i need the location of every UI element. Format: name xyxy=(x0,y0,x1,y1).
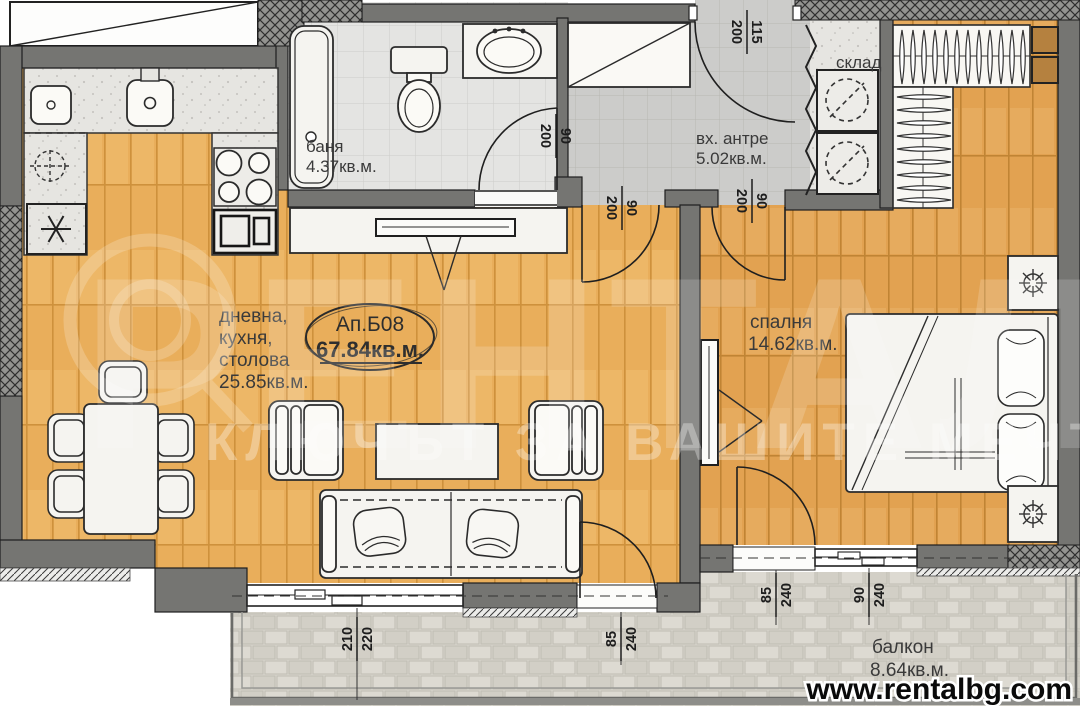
bathroom-area: 4.37кв.м. xyxy=(306,157,377,176)
floorplan-page: 115 200 90 200 90 200 90 200 210 220 85 … xyxy=(0,0,1080,713)
svg-text:210: 210 xyxy=(340,627,356,651)
sofa xyxy=(320,490,582,578)
svg-text:90: 90 xyxy=(852,587,868,603)
kitchen-side-sink xyxy=(31,86,71,124)
kitchen-top-window xyxy=(10,2,258,46)
washing-machine xyxy=(817,70,878,131)
bathroom-label: баня xyxy=(306,137,343,156)
washing-machine xyxy=(817,133,878,194)
svg-text:200: 200 xyxy=(537,124,553,148)
svg-text:85: 85 xyxy=(604,631,620,647)
svg-text:240: 240 xyxy=(624,627,640,651)
bathroom-sink xyxy=(463,24,557,78)
slogan-watermark: КЛЮЧЪТ ЗА ВАШИТЕ МЕЧТИ xyxy=(205,413,1080,472)
svg-text:90: 90 xyxy=(557,128,573,144)
svg-text:240: 240 xyxy=(872,583,888,607)
svg-text:200: 200 xyxy=(603,196,619,220)
svg-text:90: 90 xyxy=(753,193,769,209)
hall-area: 5.02кв.м. xyxy=(696,149,767,168)
hall-wardrobe xyxy=(568,23,690,87)
floorplan-canvas: 115 200 90 200 90 200 90 200 210 220 85 … xyxy=(0,0,1080,713)
svg-text:220: 220 xyxy=(360,627,376,651)
svg-text:200: 200 xyxy=(728,20,744,44)
svg-text:85: 85 xyxy=(759,587,775,603)
balcony-label: балкон xyxy=(872,637,934,658)
wardrobe-shelf xyxy=(1032,57,1058,83)
storage-label: склад xyxy=(836,53,882,72)
site-url-watermark: www.rentalbg.com xyxy=(805,673,1072,706)
entrance-threshold xyxy=(695,0,795,22)
svg-text:115: 115 xyxy=(748,20,764,43)
wardrobe-shelf xyxy=(1032,27,1058,53)
hall-label: вх. антре xyxy=(696,129,769,148)
svg-text:200: 200 xyxy=(733,189,749,213)
stove xyxy=(214,148,276,206)
svg-text:240: 240 xyxy=(779,583,795,607)
svg-text:90: 90 xyxy=(623,200,639,216)
refrigerator xyxy=(27,204,86,254)
